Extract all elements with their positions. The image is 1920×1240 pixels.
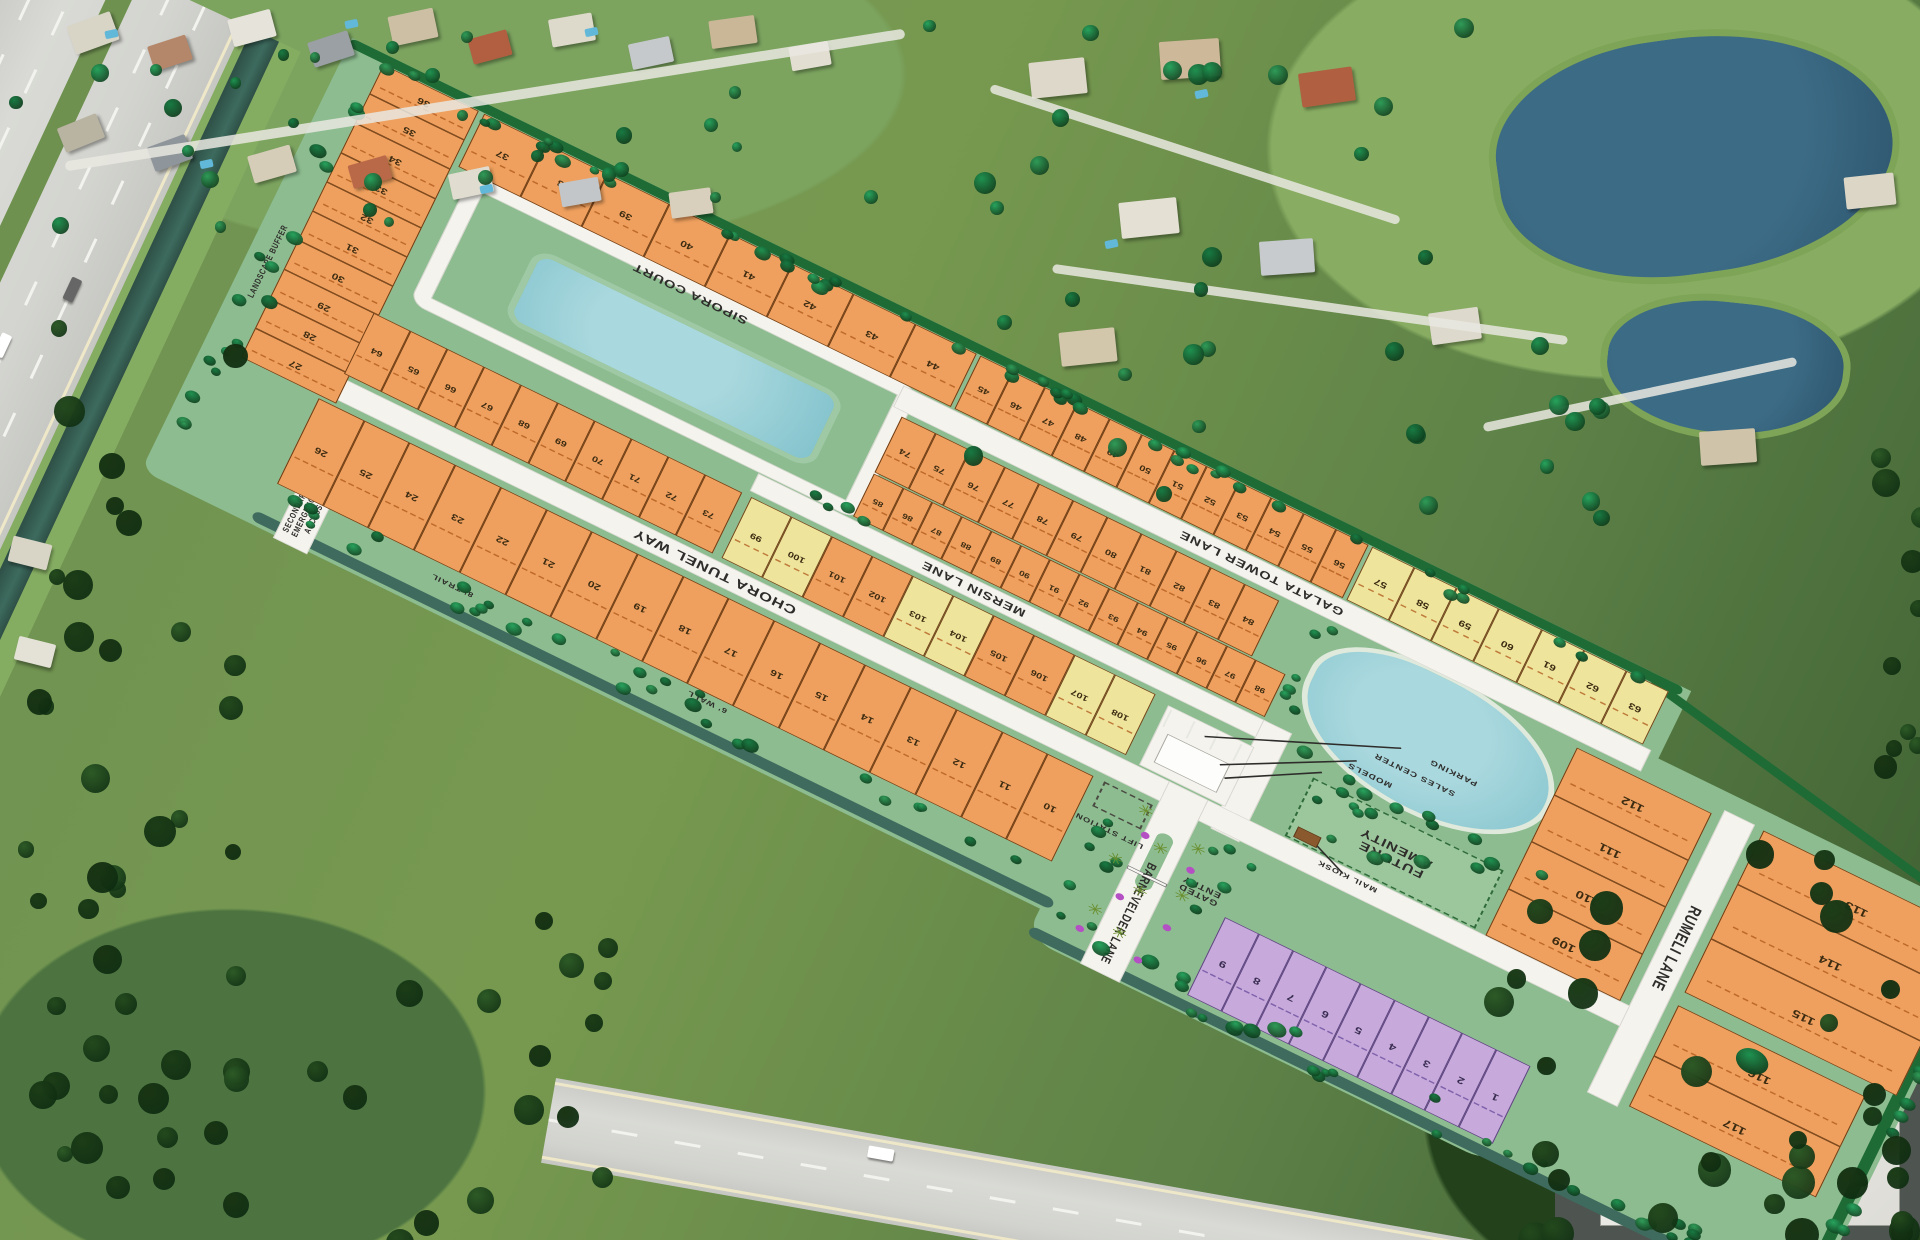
lot-number: 105 xyxy=(989,648,1009,664)
lot-setback-line xyxy=(704,656,743,676)
lot-setback-line xyxy=(1095,455,1123,469)
tree xyxy=(864,190,878,204)
lot-number: 99 xyxy=(749,531,764,544)
tree xyxy=(47,997,66,1016)
tree xyxy=(1527,899,1552,924)
tree xyxy=(585,1014,603,1032)
lot-number: 75 xyxy=(932,463,947,476)
lot-number: 42 xyxy=(802,298,818,313)
tree xyxy=(425,68,440,83)
lot-number: 117 xyxy=(1721,1116,1748,1138)
lot-number: 79 xyxy=(1069,530,1084,543)
lot-number: 8 xyxy=(1251,974,1262,987)
tree xyxy=(1910,600,1920,618)
tree xyxy=(144,816,175,847)
tree xyxy=(71,1132,103,1164)
tree xyxy=(1590,891,1623,924)
lot-setback-line xyxy=(357,354,388,370)
tree xyxy=(1881,980,1900,999)
tree xyxy=(594,972,612,990)
lot-number: 82 xyxy=(1172,580,1187,593)
tree xyxy=(115,993,137,1015)
tree xyxy=(1872,469,1900,497)
lot-setback-line xyxy=(1474,1102,1503,1117)
lot-setback-line xyxy=(955,488,984,503)
lot-number: 23 xyxy=(449,511,465,526)
tree xyxy=(1882,1136,1911,1165)
tree xyxy=(1418,250,1433,265)
tree xyxy=(157,1127,178,1148)
lot-number: 7 xyxy=(1285,991,1296,1004)
lot-number: 69 xyxy=(554,436,569,449)
lot-number: 12 xyxy=(950,756,966,771)
lot-number: 9 xyxy=(1217,958,1228,971)
tree xyxy=(1532,1141,1559,1168)
tree xyxy=(1820,900,1853,933)
tree xyxy=(1579,930,1610,961)
lot-setback-line xyxy=(1023,812,1062,832)
lot-number: 108 xyxy=(1110,707,1130,723)
lot-setback-line xyxy=(1161,588,1190,603)
tree xyxy=(224,1066,249,1091)
lot-setback-line xyxy=(998,408,1026,422)
lot-number: 6 xyxy=(1319,1008,1330,1021)
lot-number: 41 xyxy=(740,268,756,283)
lot-number: 100 xyxy=(787,549,807,565)
lot-setback-line xyxy=(1372,1052,1401,1067)
lot-number: 112 xyxy=(1619,793,1646,815)
tree xyxy=(288,118,298,128)
lot-setback-line xyxy=(1289,550,1317,564)
lot-setback-line xyxy=(1202,970,1231,985)
lot-number: 90 xyxy=(1018,568,1031,580)
lot-setback-line xyxy=(431,523,470,543)
tree xyxy=(278,49,289,60)
lot-number: 22 xyxy=(495,534,511,549)
tree xyxy=(91,64,109,82)
aerial-site-plan-screenshot: SIPORA COURT GALATA TOWER LANE MERSIN LA… xyxy=(0,0,1920,1240)
lot-number: 34 xyxy=(387,153,403,168)
lot-number: 74 xyxy=(898,446,913,459)
tree xyxy=(1406,424,1425,443)
tree xyxy=(1863,1107,1882,1126)
tree xyxy=(18,841,34,857)
lot-setback-line xyxy=(340,478,379,498)
lot-number: 25 xyxy=(358,467,374,482)
house-roof xyxy=(1118,197,1179,239)
lot-number: 13 xyxy=(905,734,921,749)
tree xyxy=(363,203,377,217)
tree xyxy=(1593,510,1609,526)
tree xyxy=(1863,1083,1886,1106)
tree xyxy=(1701,1152,1721,1172)
tree xyxy=(29,1081,57,1109)
lot-number: 66 xyxy=(444,382,459,395)
lot-setback-line xyxy=(1126,572,1155,587)
lot-setback-line xyxy=(1257,534,1285,548)
lot-number: 91 xyxy=(1048,582,1061,594)
lot-setback-line xyxy=(504,426,535,442)
lot-number: 64 xyxy=(370,346,385,359)
tree xyxy=(215,221,226,232)
tree xyxy=(161,1050,191,1080)
tree xyxy=(1108,438,1127,457)
tree xyxy=(616,127,633,144)
tree xyxy=(364,173,382,191)
lot-number: 15 xyxy=(814,689,830,704)
lot-setback-line xyxy=(1127,471,1155,485)
lot-setback-line xyxy=(750,678,789,698)
lot-setback-line xyxy=(615,480,646,496)
lot-number: 83 xyxy=(1207,597,1222,610)
house-roof xyxy=(1058,327,1117,367)
lot-setback-line xyxy=(476,545,515,565)
tree xyxy=(219,696,243,720)
lot-setback-line xyxy=(920,471,949,486)
lot-number: 56 xyxy=(1332,557,1347,570)
lot-number: 14 xyxy=(859,711,875,726)
lot-setback-line xyxy=(1192,502,1220,516)
lot-setback-line xyxy=(965,392,993,406)
lot-setback-line xyxy=(541,444,572,460)
tree xyxy=(78,899,99,920)
tree xyxy=(990,201,1004,215)
lot-number: 27 xyxy=(287,358,303,373)
tree xyxy=(1537,1057,1555,1075)
tree xyxy=(557,1106,579,1128)
tree xyxy=(1507,969,1526,988)
lot-setback-line xyxy=(989,505,1018,520)
lot-number: 17 xyxy=(723,645,739,660)
lot-number: 21 xyxy=(540,556,556,571)
lot-setback-line xyxy=(613,612,652,632)
lot-number: 26 xyxy=(312,445,328,460)
lot-setback-line xyxy=(1058,538,1087,553)
lot-number: 43 xyxy=(863,328,879,343)
lot-number: 70 xyxy=(591,454,606,467)
lot-setback-line xyxy=(385,501,424,521)
tree xyxy=(1887,1167,1909,1189)
lot-setback-line xyxy=(1338,1036,1367,1051)
tree xyxy=(514,1095,544,1125)
tree xyxy=(1192,420,1205,433)
lot-number: 44 xyxy=(925,358,941,373)
lot-setback-line xyxy=(1229,622,1258,637)
lot-number: 53 xyxy=(1235,510,1250,523)
tree xyxy=(614,162,629,177)
lot-setback-line xyxy=(1092,555,1121,570)
tree xyxy=(1782,1166,1815,1199)
tree xyxy=(457,110,468,121)
lot-number: 93 xyxy=(1107,611,1120,623)
lot-number: 109 xyxy=(1550,934,1578,956)
lot-setback-line xyxy=(734,539,769,557)
tree xyxy=(164,99,182,117)
lot-number: 101 xyxy=(827,569,847,585)
lot-number: 94 xyxy=(1136,625,1149,637)
tree xyxy=(54,396,85,427)
lot-number: 61 xyxy=(1542,659,1558,674)
lot-setback-line xyxy=(932,767,971,787)
tree xyxy=(1052,109,1070,127)
tree xyxy=(201,171,219,189)
tree xyxy=(1681,1056,1712,1087)
tree xyxy=(1789,1131,1807,1149)
lot-setback-line xyxy=(1236,986,1265,1001)
lot-number: 72 xyxy=(665,490,680,503)
house-roof xyxy=(1028,57,1087,99)
lot-number: 1 xyxy=(1489,1090,1500,1103)
lot-number: 57 xyxy=(1372,576,1388,591)
tree xyxy=(1891,1211,1914,1234)
lot-number: 48 xyxy=(1073,431,1088,444)
lot-number: 103 xyxy=(908,608,928,624)
lot-number: 81 xyxy=(1138,563,1153,576)
lot-number: 18 xyxy=(677,622,693,637)
tree xyxy=(478,170,493,185)
tree xyxy=(1568,978,1598,1008)
lot-setback-line xyxy=(393,372,424,388)
lot-number: 89 xyxy=(989,553,1002,565)
lot-number: 19 xyxy=(631,600,647,615)
lot-number: 55 xyxy=(1300,541,1315,554)
lot-setback-line xyxy=(522,567,561,587)
lot-number: 45 xyxy=(976,384,991,397)
tree xyxy=(30,893,47,910)
lot-number: 3 xyxy=(1421,1057,1432,1070)
tree xyxy=(559,953,584,978)
lot-number: 58 xyxy=(1415,597,1431,612)
lot-number: 37 xyxy=(494,148,510,163)
lot-number: 111 xyxy=(1597,840,1623,861)
tree xyxy=(1901,550,1920,573)
lot-number: 107 xyxy=(1070,687,1090,703)
tree xyxy=(1549,395,1569,415)
tree xyxy=(592,1167,613,1188)
lot-setback-line xyxy=(1195,605,1224,620)
lot-setback-line xyxy=(887,745,926,765)
tree xyxy=(224,655,246,677)
lot-number: 78 xyxy=(1035,513,1050,526)
lot-number: 96 xyxy=(1195,654,1208,666)
house-roof xyxy=(1843,172,1896,209)
lot-setback-line xyxy=(430,390,461,406)
tree xyxy=(710,192,721,203)
lot-number: 85 xyxy=(871,496,884,508)
tree xyxy=(974,172,996,194)
lot-number: 52 xyxy=(1203,494,1218,507)
tree xyxy=(1454,18,1474,38)
lot-number: 77 xyxy=(1001,496,1016,509)
house-roof xyxy=(1259,238,1315,276)
tree xyxy=(467,1187,494,1214)
lot-number: 60 xyxy=(1499,638,1515,653)
lot-setback-line xyxy=(578,462,609,478)
tree xyxy=(9,96,23,110)
tree xyxy=(1082,25,1098,41)
tree xyxy=(1183,344,1203,364)
lot-number: 10 xyxy=(1042,800,1058,815)
tree xyxy=(223,1192,249,1218)
tree xyxy=(1900,724,1916,740)
lot-number: 71 xyxy=(628,472,643,485)
tree xyxy=(138,1083,169,1114)
lot-number: 51 xyxy=(1170,478,1185,491)
vehicle xyxy=(867,1145,895,1161)
lot-setback-line xyxy=(659,634,698,654)
lot-number: 5 xyxy=(1353,1024,1364,1037)
lot-setback-line xyxy=(568,590,607,610)
lot-number: 98 xyxy=(1254,683,1267,695)
tree xyxy=(310,52,321,63)
lot-number: 47 xyxy=(1041,415,1056,428)
lot-number: 24 xyxy=(404,489,420,504)
tree xyxy=(223,344,247,368)
tree xyxy=(93,945,122,974)
tree xyxy=(1065,292,1079,306)
tree xyxy=(1163,61,1182,80)
lot-setback-line xyxy=(688,516,719,532)
lot-number: 40 xyxy=(679,238,695,253)
lot-number: 62 xyxy=(1584,680,1600,695)
tree xyxy=(1886,740,1903,757)
lot-number: 29 xyxy=(316,300,332,315)
lot-number: 68 xyxy=(517,418,532,431)
lot-number: 30 xyxy=(330,271,346,286)
lot-setback-line xyxy=(886,455,915,470)
lot-setback-line xyxy=(467,408,498,424)
lot-setback-line xyxy=(294,456,333,476)
tree xyxy=(1268,65,1288,85)
tree xyxy=(531,150,543,162)
lot-number: 87 xyxy=(930,525,943,537)
tree xyxy=(63,570,93,600)
tree xyxy=(51,320,67,336)
tree xyxy=(1156,486,1172,502)
tree xyxy=(64,622,94,652)
tree xyxy=(1565,412,1585,432)
lot-number: 88 xyxy=(960,539,973,551)
lot-setback-line xyxy=(1304,1019,1333,1034)
lot-number: 28 xyxy=(302,329,318,344)
lot-setback-line xyxy=(1030,423,1058,437)
lot-number: 16 xyxy=(768,667,784,682)
lot-number: 65 xyxy=(407,364,422,377)
lot-setback-line xyxy=(841,723,880,743)
tree xyxy=(1837,1167,1869,1199)
lot-number: 2 xyxy=(1455,1074,1466,1087)
tree xyxy=(1814,850,1834,870)
tree xyxy=(1746,840,1774,868)
tree xyxy=(230,77,241,88)
lot-number: 84 xyxy=(1241,614,1256,627)
lot-number: 50 xyxy=(1138,462,1153,475)
tree xyxy=(414,1210,439,1235)
lot-number: 97 xyxy=(1224,668,1237,680)
tree xyxy=(997,315,1012,330)
tree xyxy=(1871,448,1891,468)
lot-setback-line xyxy=(1224,518,1252,532)
lot-setback-line xyxy=(1023,521,1052,536)
lot-number: 95 xyxy=(1165,640,1178,652)
lot-number: 20 xyxy=(586,578,602,593)
lot-setback-line xyxy=(978,790,1017,810)
tree xyxy=(529,1045,551,1067)
lot-setback-line xyxy=(1440,1086,1469,1101)
tree xyxy=(1648,1203,1678,1233)
lot-number: 106 xyxy=(1030,667,1050,683)
tree xyxy=(87,862,118,893)
tree xyxy=(1118,368,1132,382)
tree xyxy=(598,938,618,958)
lot-setback-line xyxy=(1270,1003,1299,1018)
lot-number: 92 xyxy=(1077,597,1090,609)
lot-number: 54 xyxy=(1267,526,1282,539)
tree xyxy=(1194,282,1208,296)
tree xyxy=(226,966,246,986)
lot-number: 31 xyxy=(344,241,360,256)
house-roof xyxy=(1699,428,1757,466)
lot-number: 86 xyxy=(901,510,914,522)
lot-number: 73 xyxy=(702,508,717,521)
lot-number: 67 xyxy=(480,400,495,413)
tree xyxy=(1531,337,1549,355)
lot-number: 35 xyxy=(402,124,418,139)
tree xyxy=(1874,755,1898,779)
tree xyxy=(225,844,241,860)
tree xyxy=(99,453,124,478)
tree xyxy=(1582,492,1601,511)
lot-number: 63 xyxy=(1626,700,1642,715)
tree xyxy=(964,446,983,465)
lot-number: 104 xyxy=(949,628,969,644)
tree xyxy=(343,1085,367,1109)
tree xyxy=(1541,1217,1574,1240)
lot-number: 76 xyxy=(966,480,981,493)
tree xyxy=(1764,1194,1784,1214)
tree xyxy=(27,689,53,715)
lot-setback-line xyxy=(795,701,834,721)
tree xyxy=(1354,147,1369,162)
tree xyxy=(386,41,399,54)
lot-number: 39 xyxy=(617,208,633,223)
lot-number: 59 xyxy=(1457,618,1473,633)
lot-number: 4 xyxy=(1387,1041,1398,1054)
lot-number: 46 xyxy=(1009,399,1024,412)
tree xyxy=(204,1121,228,1145)
lot-number: 11 xyxy=(996,778,1012,793)
lot-number: 102 xyxy=(868,589,888,605)
tree xyxy=(1589,398,1606,415)
lot-number: 80 xyxy=(1104,547,1119,560)
lot-setback-line xyxy=(1321,565,1349,579)
tree xyxy=(1540,459,1554,473)
tree xyxy=(99,1085,118,1104)
lot-setback-line xyxy=(651,498,682,514)
lot-setback-line xyxy=(1406,1069,1435,1084)
lot-setback-line xyxy=(1063,439,1091,453)
